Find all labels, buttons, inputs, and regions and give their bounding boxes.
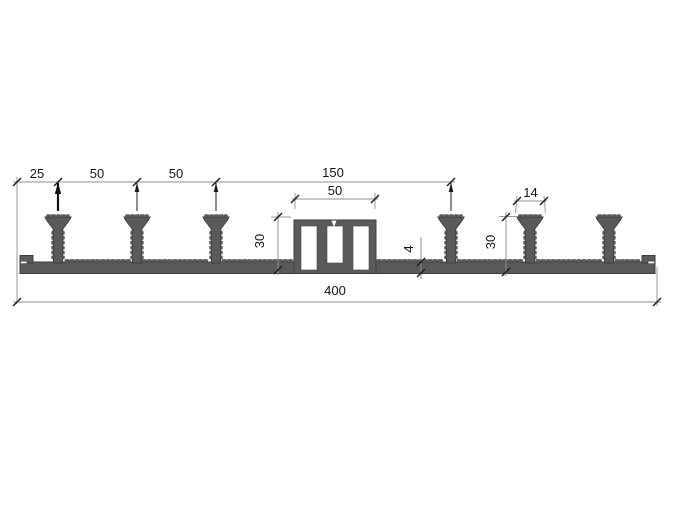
pointer-rib-1 [55, 183, 61, 212]
profile-right-hook-gap [648, 262, 654, 264]
profile-left-hook-gap [21, 262, 27, 264]
bulb-slot-left [301, 226, 317, 270]
dim-label-30-right: 30 [483, 235, 498, 249]
anchor-rib-5 [517, 216, 543, 263]
dim-label-50-b: 50 [169, 166, 183, 181]
center-bulb [294, 220, 376, 274]
dim-label-50-a: 50 [90, 166, 104, 181]
pointer-rib-4 [449, 183, 454, 212]
pointer-rib-2 [135, 183, 140, 212]
dim-label-25: 25 [30, 166, 44, 181]
waterstop-profile [20, 216, 655, 274]
drawing-canvas: 25 50 50 150 50 14 30 30 [0, 0, 675, 518]
dimension-bulb-width: 50 [291, 183, 379, 209]
dimension-total-width: 400 [13, 283, 661, 306]
dimension-top-chain: 25 50 50 150 [13, 165, 455, 211]
dim-label-50-bulb: 50 [328, 183, 342, 198]
dim-label-400: 400 [324, 283, 346, 298]
bulb-slot-middle [327, 226, 343, 263]
technical-drawing: 25 50 50 150 50 14 30 30 [0, 0, 675, 518]
anchor-rib-4 [438, 216, 464, 263]
dimension-rib-head: 14 [513, 185, 548, 213]
anchor-rib-2 [124, 216, 150, 263]
dim-label-14: 14 [523, 185, 537, 200]
dim-label-4: 4 [401, 245, 416, 252]
bulb-slot-right [353, 226, 369, 270]
pointer-rib-3 [214, 183, 219, 212]
dim-label-30-left: 30 [252, 234, 267, 248]
anchor-rib-3 [203, 216, 229, 263]
anchor-rib-1 [45, 216, 71, 263]
dim-label-150: 150 [322, 165, 344, 180]
anchor-rib-6 [596, 216, 622, 263]
